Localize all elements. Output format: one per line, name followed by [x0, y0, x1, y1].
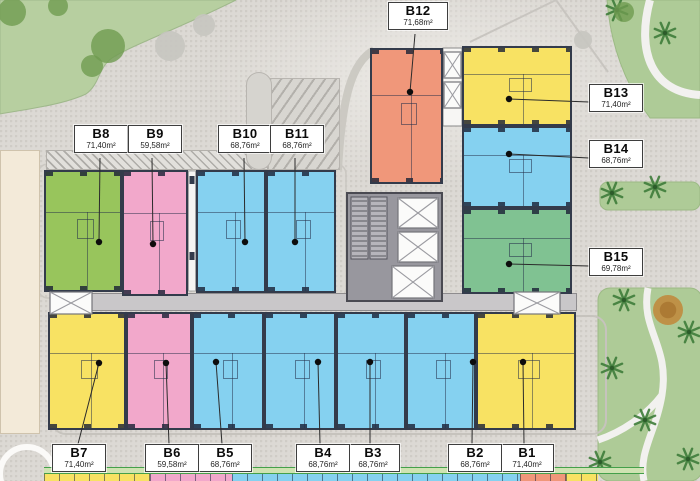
unit-id: B1: [503, 446, 551, 460]
wall-line: [124, 290, 186, 294]
wall-line: [408, 314, 474, 318]
wall-line: [464, 48, 570, 52]
bathroom-outline: [77, 219, 94, 239]
wall-line: [464, 202, 570, 206]
units-layer: [0, 0, 700, 481]
unit-B7: [48, 312, 126, 430]
unit-B14: [462, 126, 572, 208]
wall-line: [464, 155, 570, 156]
unit-B1: [476, 312, 576, 430]
floor-plan: B1 71,40m² B2 68,76m² B3 68,76m² B4 68,7…: [0, 0, 700, 481]
unit-area: 69,78m²: [592, 264, 640, 273]
unit-label-B8: B8 71,40m²: [74, 125, 128, 153]
unit-label-B3: B3 68,76m²: [346, 444, 400, 472]
unit-B9: [122, 170, 188, 296]
unit-label-B2: B2 68,76m²: [448, 444, 502, 472]
unit-area: 71,40m²: [592, 100, 640, 109]
wall-line: [478, 424, 574, 428]
unit-label-B4: B4 68,76m²: [296, 444, 350, 472]
unit-B10: [196, 170, 266, 293]
unit-B3: [336, 312, 406, 430]
bathroom-outline: [223, 360, 239, 379]
unit-id: B12: [391, 4, 445, 18]
wall-line: [124, 172, 186, 176]
wall-line: [372, 178, 441, 182]
wall-line: [372, 95, 441, 96]
wall-line: [372, 50, 441, 54]
wall-line: [128, 353, 190, 354]
unit-label-B12: B12 71,68m²: [388, 2, 448, 30]
wall-line: [128, 424, 190, 428]
wall-line: [408, 424, 474, 428]
bathroom-outline: [436, 360, 451, 379]
bathroom-outline: [81, 360, 98, 379]
bathroom-outline: [295, 360, 311, 379]
unit-id: B3: [349, 446, 397, 460]
unit-label-B13: B13 71,40m²: [589, 84, 643, 112]
unit-id: B5: [201, 446, 249, 460]
wall-line: [464, 288, 570, 292]
unit-B15: [462, 208, 572, 294]
unit-label-B11: B11 68,76m²: [270, 125, 324, 153]
unit-label-B9: B9 59,58m²: [128, 125, 182, 153]
unit-area: 68,76m²: [221, 141, 269, 150]
wall-line: [266, 314, 334, 318]
bathroom-outline: [150, 221, 164, 241]
wall-line: [268, 212, 334, 213]
unit-area: 59,58m²: [131, 141, 179, 150]
wall-line: [464, 120, 570, 124]
wall-line: [198, 172, 264, 176]
unit-B6: [126, 312, 192, 430]
wall-line: [408, 353, 474, 354]
unit-area: 71,40m²: [77, 141, 125, 150]
wall-line: [464, 238, 570, 239]
wall-line: [50, 353, 124, 354]
unit-label-B10: B10 68,76m²: [218, 125, 272, 153]
unit-id: B8: [77, 127, 125, 141]
wall-line: [198, 287, 264, 291]
bathroom-outline: [401, 103, 417, 125]
wall-line: [46, 172, 120, 176]
unit-area: 68,76m²: [273, 141, 321, 150]
unit-area: 68,76m²: [451, 460, 499, 469]
wall-line: [46, 286, 120, 290]
bathroom-outline: [366, 360, 381, 379]
unit-id: B7: [55, 446, 103, 460]
unit-B11: [266, 170, 336, 293]
unit-label-B1: B1 71,40m²: [500, 444, 554, 472]
unit-area: 59,58m²: [148, 460, 196, 469]
unit-B2: [406, 312, 476, 430]
unit-B8: [44, 170, 122, 292]
unit-id: B10: [221, 127, 269, 141]
unit-label-B5: B5 68,76m²: [198, 444, 252, 472]
unit-B5: [192, 312, 264, 430]
unit-label-B6: B6 59,58m²: [145, 444, 199, 472]
wall-line: [194, 424, 262, 428]
unit-area: 71,68m²: [391, 18, 445, 27]
wall-line: [464, 128, 570, 132]
wall-line: [478, 314, 574, 318]
wall-line: [338, 353, 404, 354]
wall-line: [198, 212, 264, 213]
wall-line: [478, 353, 574, 354]
unit-id: B9: [131, 127, 179, 141]
unit-B13: [462, 46, 572, 126]
bathroom-outline: [518, 360, 539, 379]
wall-line: [50, 424, 124, 428]
bathroom-outline: [296, 220, 311, 240]
unit-label-B7: B7 71,40m²: [52, 444, 106, 472]
wall-line: [266, 353, 334, 354]
unit-id: B11: [273, 127, 321, 141]
wall-line: [194, 353, 262, 354]
bathroom-outline: [226, 220, 241, 240]
unit-id: B2: [451, 446, 499, 460]
wall-line: [338, 314, 404, 318]
wall-line: [338, 424, 404, 428]
unit-area: 68,76m²: [201, 460, 249, 469]
unit-B4: [264, 312, 336, 430]
unit-id: B4: [299, 446, 347, 460]
wall-line: [268, 287, 334, 291]
wall-line: [464, 74, 570, 75]
wall-line: [464, 210, 570, 214]
wall-line: [50, 314, 124, 318]
unit-id: B14: [592, 142, 640, 156]
wall-line: [124, 213, 186, 214]
wall-line: [266, 424, 334, 428]
unit-label-B15: B15 69,78m²: [589, 248, 643, 276]
unit-area: 68,76m²: [349, 460, 397, 469]
bathroom-outline: [154, 360, 168, 379]
bathroom-outline: [509, 243, 532, 257]
wall-line: [128, 314, 190, 318]
unit-id: B6: [148, 446, 196, 460]
unit-area: 68,76m²: [299, 460, 347, 469]
bathroom-outline: [509, 78, 532, 91]
unit-area: 68,76m²: [592, 156, 640, 165]
unit-area: 71,40m²: [503, 460, 551, 469]
wall-line: [46, 212, 120, 213]
unit-area: 71,40m²: [55, 460, 103, 469]
wall-line: [268, 172, 334, 176]
bathroom-outline: [509, 159, 532, 173]
unit-label-B14: B14 68,76m²: [589, 140, 643, 168]
unit-B12: [370, 48, 443, 184]
unit-id: B15: [592, 250, 640, 264]
unit-id: B13: [592, 86, 640, 100]
wall-line: [194, 314, 262, 318]
